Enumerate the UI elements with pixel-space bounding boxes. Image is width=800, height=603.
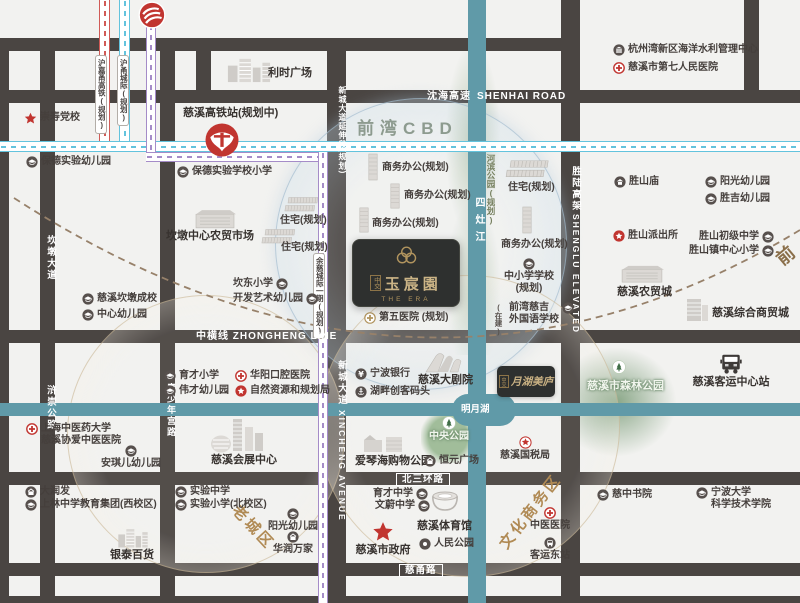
poi-lishi-plaza: 利时广场 [268, 67, 312, 80]
shop-icon [424, 455, 436, 467]
poi-shengshan-central-primary: 胜山镇中心小学 [689, 245, 774, 257]
school-icon [82, 309, 94, 321]
poi-forest-park-tree [612, 360, 629, 374]
bigstar-icon [372, 521, 394, 543]
poi-label: 文蔚中学 [375, 500, 415, 512]
school-icon [562, 302, 574, 314]
school-icon [164, 385, 176, 397]
road-station-connector [196, 45, 211, 103]
office-tower-2-icon [388, 182, 402, 210]
poi-kandun-farmers-market: 坎墩中心农贸市场 [166, 230, 254, 243]
poi-label: 人民公园 [434, 538, 474, 550]
road-qingshaonian [160, 45, 175, 603]
poi-label: 恒元广场 [439, 455, 479, 467]
poi-label: 杭州湾新区海洋水利管理中心 [628, 44, 758, 56]
poi-shanghai-tcm-hospital: 上海中医药大学慈溪协爱中医医院 [26, 423, 121, 447]
road-west-edge [0, 38, 9, 603]
project-logo-card: 中交 玉宸園 THE ERA [352, 239, 460, 307]
poi-label: 第五医院 (规划) [379, 312, 448, 324]
stadium-building-icon [429, 488, 461, 518]
school-icon [762, 231, 774, 243]
poi-label: 伟才幼儿园 [179, 385, 229, 397]
school-icon [164, 370, 176, 382]
poi-label: 利时广场 [268, 67, 312, 80]
poi-no7-people-hospital: 慈溪市第七人民医院 [613, 62, 718, 74]
poi-label: 慈溪市第七人民医院 [628, 62, 718, 74]
bank-icon: ¥ [355, 368, 367, 380]
label-xincheng-cn: 新城大道 [327, 360, 346, 406]
poi-label: 育才小学 [179, 370, 219, 382]
hospital-icon [235, 370, 247, 382]
poi-natural-resources-bureau: 自然资源和规划局 [235, 385, 330, 397]
poi-cixi-hsr-station: 慈溪高铁站(规划中) [183, 107, 278, 120]
poi-nbu-sci-tech-college: 宁波大学科学技术学院 [696, 487, 771, 511]
poi-chongshou-party-school: 崇寿党校 [24, 112, 80, 125]
goldcross-icon [364, 312, 376, 324]
poi-label: 宁波大学科学技术学院 [711, 487, 771, 511]
poi-tcm-hospital: 中医医院 [522, 507, 578, 532]
project-name-en: THE ERA [381, 296, 430, 303]
poi-primary-middle-planned: 中小学学校(规划) [501, 258, 557, 295]
poi-label: 坎东小学 [233, 278, 273, 290]
poi-label: 胜山派出所 [628, 230, 678, 242]
hospital-icon [544, 507, 556, 519]
poi-cixi-convention-center: 慈溪会展中心 [211, 454, 277, 467]
lishi-plaza-building-icon [226, 55, 272, 84]
label-sizao-river: 四灶江 [469, 197, 486, 248]
poi-label: 实验中学 [190, 486, 230, 498]
road-north [0, 38, 578, 51]
poi-cizhong-academy: 慈中书院 [597, 489, 652, 501]
poi-shengshan-junior-middle: 胜山初级中学 [699, 231, 774, 243]
housing-rows-1-icon [284, 196, 320, 213]
school-icon [762, 245, 774, 257]
road-south-edge [0, 596, 800, 603]
police-icon [235, 385, 247, 397]
poi-shanglin-middle-west: 上林中学教育集团(西校区) [25, 499, 157, 511]
badge-hujiayong-hsr: 沪嘉甬高铁(规划) [95, 55, 107, 134]
poi-label: 慈溪客运中心站 [693, 376, 770, 389]
poi-label: 华阳口腔医院 [250, 370, 310, 382]
poi-residential-1: 住宅(规划) [280, 215, 327, 227]
poi-label: 中医医院 [530, 520, 570, 532]
poi-label: (在建) [494, 303, 503, 336]
poi-label: 实验小学(北校区) [190, 499, 267, 511]
poi-label: 慈溪市森林公园 [587, 380, 664, 393]
poi-label: 前湾慈吉外国语学校 [509, 302, 559, 326]
office-tower-4-icon [520, 205, 534, 235]
label-xincheng-en: XINCHENG AVENUE [327, 410, 346, 522]
poi-hzw-water-center: 杭州湾新区海洋水利管理中心 [613, 44, 758, 56]
poi-cixi-forest-park: 慈溪市森林公园 [587, 380, 664, 393]
kandun-market-building-icon [194, 208, 236, 231]
poi-label: 商务办公(规划) [382, 162, 449, 174]
poi-center-kindergarten: 中心幼儿园 [82, 309, 147, 321]
poi-label: 慈溪坎墩成校 [97, 293, 157, 305]
poi-label: 中心幼儿园 [97, 309, 147, 321]
poi-biz-office-1: 商务办公(规划) [382, 162, 449, 174]
grand-theater-building-icon [422, 350, 468, 375]
convention-center-building-icon [209, 415, 265, 455]
poi-label: 坎墩中心农贸市场 [166, 230, 254, 243]
star-icon [24, 112, 37, 125]
poi-cixi-kandun-school: 慈溪坎墩成校 [82, 293, 157, 305]
poi-cixi-comprehensive-trade-city: 慈溪综合商贸城 [712, 307, 789, 320]
school-icon [416, 488, 428, 500]
poi-label: 胜山庙 [629, 176, 659, 188]
poi-label: 中小学学校(规划) [504, 271, 554, 295]
poi-label: 慈溪体育馆 [417, 520, 472, 533]
school-icon [696, 487, 708, 499]
label-mingyue-lake: 明月湖 [461, 404, 490, 416]
project-knot-icon [393, 244, 420, 272]
aegean-mall-building-icon [362, 432, 406, 454]
poi-label: 慈溪高铁站(规划中) [183, 107, 278, 120]
poi-label: 湖畔创客码头 [370, 386, 430, 398]
poi-label: 慈溪大剧院 [418, 374, 473, 387]
poi-residential-3: 住宅(规划) [508, 182, 555, 194]
poi-yucai-middle: 育才中学 [373, 488, 428, 500]
poi-label: 开发艺术幼儿园 [233, 293, 303, 305]
bus-icon [544, 537, 556, 549]
poi-angel-kindergarten: 安琪儿幼儿园 [100, 445, 162, 470]
school-icon [175, 499, 187, 511]
poi-no5-hospital-planned: 第五医院 (规划) [364, 312, 448, 324]
sister-name: 月湖美庐 [511, 374, 553, 389]
school-icon [276, 278, 288, 290]
poi-label: 崇寿党校 [40, 112, 80, 124]
tree-icon [442, 416, 456, 430]
trade-city-building-icon [683, 297, 711, 323]
label-kandun: 坎墩大道 [40, 235, 55, 281]
poi-yintai-department-store: 银泰百货 [110, 549, 154, 562]
office-tower-1-icon [366, 152, 380, 182]
poi-residential-2: 住宅(规划) [281, 242, 328, 254]
poi-hengyuan-plaza: 恒元广场 [424, 455, 479, 467]
project-name: 玉宸園 [385, 273, 442, 294]
school-icon [177, 166, 189, 178]
poi-label: 胜山初级中学 [699, 231, 759, 243]
yintai-building-icon [117, 526, 149, 549]
school-icon [523, 258, 535, 270]
poi-darunfa: 大润发 [25, 486, 70, 498]
poi-label: 自然资源和规划局 [250, 385, 330, 397]
label-riverside-park: 河滨公园(规划) [485, 154, 497, 225]
poi-label: 安琪儿幼儿园 [101, 458, 161, 470]
zone-qianwan-cbd: 前湾CBD [357, 114, 458, 139]
poi-label: 慈溪农贸城 [617, 286, 672, 299]
poi-under-construction-tag: (在建) [494, 303, 503, 336]
poi-label: 慈溪会展中心 [211, 454, 277, 467]
shop-icon [25, 486, 37, 498]
label-xincheng-ext: 新城大道延伸段(规划) [327, 86, 346, 174]
school-icon [175, 486, 187, 498]
poi-label: 慈中书院 [612, 489, 652, 501]
school-icon [306, 293, 318, 305]
poi-shiyan-middle: 实验中学 [175, 486, 230, 498]
project-brand: 中交 [370, 275, 381, 291]
police-icon [613, 230, 625, 242]
poi-label: 爱琴海购物公园 [355, 455, 432, 468]
poi-label: 育才中学 [373, 488, 413, 500]
poi-label: 上海中医药大学慈溪协爱中医医院 [41, 423, 121, 447]
poi-yangguang-kindergarten-s: 阳光幼儿园 [264, 508, 322, 533]
office-tower-3-icon [357, 206, 371, 234]
poi-wenwei-middle: 文蔚中学 [375, 500, 430, 512]
road-zhongheng [0, 330, 800, 343]
rail-huyong-intercity-h [0, 141, 800, 152]
poi-label: 上林中学教育集团(西校区) [40, 499, 157, 511]
school-icon [26, 156, 38, 168]
poi-label: 住宅(规划) [280, 215, 327, 227]
school-icon [705, 176, 717, 188]
forest-park-green-area [532, 326, 700, 478]
poi-label: 慈溪综合商贸城 [712, 307, 789, 320]
poi-huayang-dental-hospital: 华阳口腔医院 [235, 370, 310, 382]
shop-icon [287, 531, 299, 543]
label-ciyong: 慈甬路 [399, 564, 443, 577]
school-icon [287, 508, 299, 520]
poi-weicai-kindergarten: 伟才幼儿园 [164, 385, 229, 397]
poi-label: 宁波银行 [370, 368, 410, 380]
poi-biz-office-3: 商务办公(规划) [372, 218, 439, 230]
poi-lakeside-maker-wharf: 湖畔创客码头 [355, 386, 430, 398]
poi-baode-exp-kindergarten: 保德实验幼儿园 [26, 156, 111, 168]
school-icon [597, 489, 609, 501]
badge-huyong-intercity: 沪甬城际(规划) [117, 55, 129, 126]
poi-label: 慈溪国税局 [500, 450, 550, 462]
label-beisanhuan: 北三环路 [396, 473, 450, 486]
poi-shengji-kindergarten: 胜吉幼儿园 [705, 193, 770, 205]
poi-label: 保德实验幼儿园 [41, 156, 111, 168]
poi-biz-office-2: 商务办公(规划) [404, 190, 471, 202]
school-icon [125, 445, 137, 457]
hospital-icon [26, 423, 38, 435]
rail-yuci-intercity-v1 [146, 14, 156, 156]
school-icon [418, 500, 430, 512]
poi-east-bus-station: 客运东站 [521, 537, 579, 562]
poi-shiyan-primary-north: 实验小学(北校区) [175, 499, 267, 511]
poi-label: 阳光幼儿园 [720, 176, 770, 188]
poi-cixi-tax-bureau: 慈溪国税局 [494, 436, 556, 462]
poi-shengshan-police: 胜山派出所 [613, 230, 678, 242]
metro-line-icon [138, 1, 166, 29]
truck-icon [719, 353, 743, 375]
poi-biz-office-4: 商务办公(规划) [501, 239, 568, 251]
poi-label: 住宅(规划) [508, 182, 555, 194]
dot-icon [419, 538, 431, 550]
poi-yucai-primary: 育才小学 [164, 370, 219, 382]
poi-cixi-city-government: 慈溪市政府 [346, 521, 420, 557]
poi-label: 住宅(规划) [281, 242, 328, 254]
poi-qianwan-ciji-school: 前湾慈吉外国语学校 [509, 302, 574, 326]
sister-project-badge: 中交 月湖美庐 [497, 366, 555, 397]
poi-label: 中央公园 [429, 431, 469, 443]
poi-label: 保德实验学校小学 [192, 166, 272, 178]
poi-label: 胜山镇中心小学 [689, 245, 759, 257]
poi-baode-exp-primary: 保德实验学校小学 [177, 166, 272, 178]
poi-aegean-shopping-park: 爱琴海购物公园 [355, 455, 432, 468]
school-icon [82, 293, 94, 305]
railway-station-icon [204, 122, 240, 158]
taxstar-icon [519, 436, 532, 449]
school-icon [25, 499, 37, 511]
label-zhongheng: 中横线 ZHONGHENG LINE [196, 330, 337, 343]
svg-text:¥: ¥ [358, 370, 364, 379]
tree-icon [612, 360, 626, 374]
poi-label: 华润万家 [273, 544, 313, 556]
poi-cixi-stadium: 慈溪体育馆 [417, 520, 472, 533]
housing-rows-3-icon [505, 159, 551, 179]
poi-huarun-wanjia: 华润万家 [264, 531, 322, 556]
poi-kaifa-art-kindergarten: 开发艺术幼儿园 [233, 293, 318, 305]
poi-label: 商务办公(规划) [404, 190, 471, 202]
poi-ningbo-bank: ¥宁波银行 [355, 368, 410, 380]
label-shenglu-cn: 胜陆高架 [561, 166, 580, 212]
poi-label: 银泰百货 [110, 549, 154, 562]
poi-label: 胜吉幼儿园 [720, 193, 770, 205]
zone-qianwan-line-label: 前 [770, 239, 800, 270]
poi-cixi-passenger-center: 慈溪客运中心站 [688, 353, 774, 389]
agri-city-building-icon [620, 264, 664, 285]
poi-renmin-park: 人民公园 [419, 538, 474, 550]
temple-icon [614, 176, 626, 188]
location-map: 沪嘉甬高铁(规划) 沪甬城际(规划) 余慈城际一期(规划) 沈海高速 SHENH… [0, 0, 800, 603]
poi-kandong-primary: 坎东小学 [233, 278, 288, 290]
poi-shengshan-temple: 胜山庙 [614, 176, 659, 188]
sister-brand: 中交 [499, 375, 509, 388]
label-shenhai-en: SHENHAI ROAD [477, 90, 566, 103]
mingyue-lake-river [0, 403, 800, 416]
poi-label: 客运东站 [530, 550, 570, 562]
hospital-icon [613, 62, 625, 74]
school-icon [705, 193, 717, 205]
poi-label: 商务办公(规划) [501, 239, 568, 251]
poi-label: 商务办公(规划) [372, 218, 439, 230]
poi-central-park: 中央公园 [424, 416, 474, 443]
poi-label: 慈溪市政府 [356, 544, 411, 557]
poi-yangguang-kindergarten-n: 阳光幼儿园 [705, 176, 770, 188]
label-shenhai-cn: 沈海高速 [427, 90, 471, 103]
poi-cixi-grand-theater: 慈溪大剧院 [418, 374, 473, 387]
wharf-icon [355, 386, 367, 398]
poi-label: 大润发 [40, 486, 70, 498]
office-icon [613, 44, 625, 56]
poi-cixi-agri-trade-city: 慈溪农贸城 [617, 286, 672, 299]
